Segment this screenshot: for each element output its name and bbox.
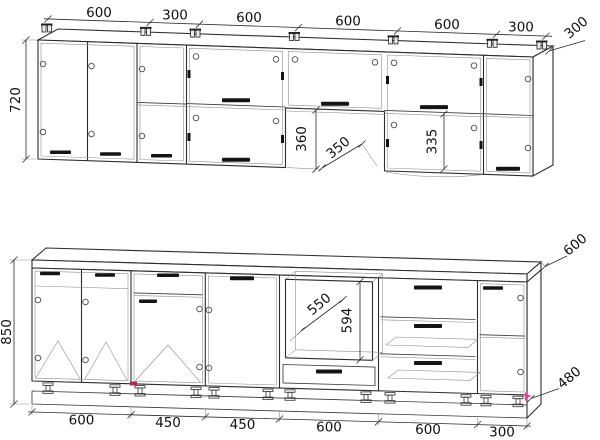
- dim-upper-width-6: 300: [508, 20, 534, 36]
- dim-base-width-1: 600: [69, 413, 95, 429]
- base-cabinet-run: 600 450 450 600 600 300 850 594 550 600: [0, 231, 590, 440]
- dim-upper-depth: 300: [561, 14, 591, 43]
- wall-cabinet-right-side-face: [533, 46, 553, 176]
- dim-upper-width-5: 600: [434, 17, 460, 33]
- dim-plinth-depth: 480: [554, 364, 584, 393]
- upper-cabinet-run: 600 300 600 600 600 300 720 300 360: [8, 5, 591, 177]
- dim-upper-width-2: 300: [162, 8, 188, 24]
- dim-base-width-6: 300: [489, 425, 515, 440]
- dim-upper-clearance: 350: [323, 134, 353, 163]
- dim-upper-height: 720: [8, 87, 24, 113]
- dim-base-width-5: 600: [415, 422, 441, 438]
- dim-upper-width-3: 600: [236, 10, 262, 26]
- dim-upper-width-1: 600: [86, 5, 112, 21]
- dim-upper-gap-height: 360: [294, 126, 310, 152]
- dim-worktop-depth: 600: [560, 231, 590, 260]
- dim-base-height: 850: [0, 319, 15, 345]
- dim-oven-opening-height: 594: [340, 308, 356, 334]
- kitchen-cabinet-technical-drawing: 600 300 600 600 600 300 720 300 360: [0, 0, 600, 440]
- dim-upper-opening-height: 335: [425, 129, 441, 155]
- dim-base-width-3: 450: [230, 417, 256, 433]
- dim-base-width-4: 600: [316, 420, 342, 436]
- red-accent-mark: [130, 382, 137, 386]
- dim-upper-width-4: 600: [335, 14, 361, 30]
- dim-base-width-2: 450: [155, 415, 181, 431]
